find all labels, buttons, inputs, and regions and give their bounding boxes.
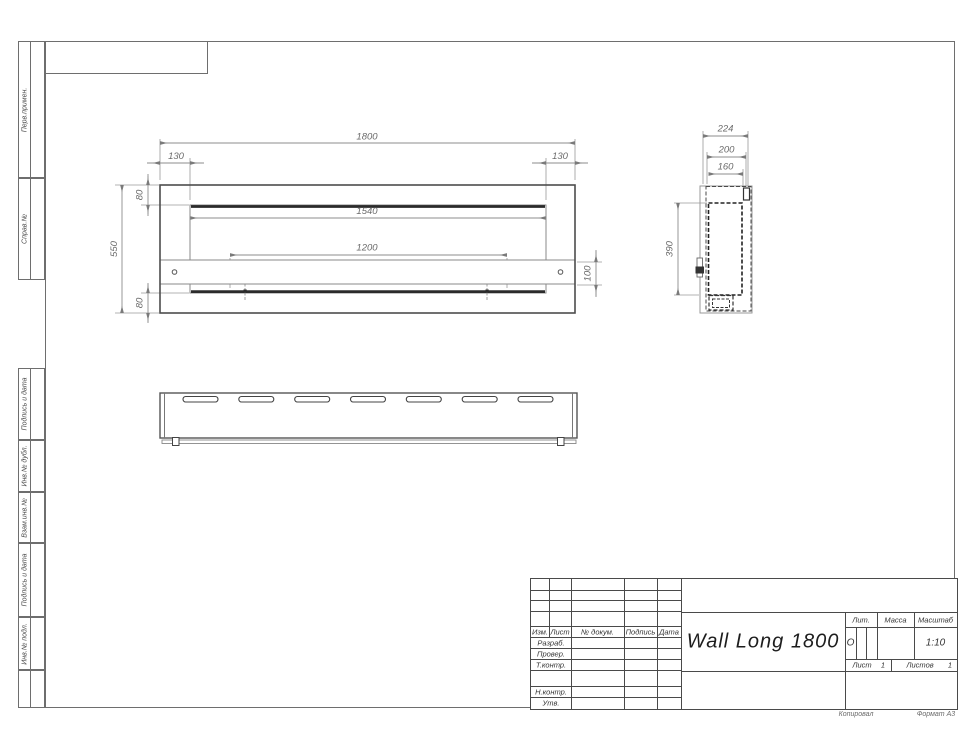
margin-box-inv-dubl: Инв.№ дубл. [18,440,45,492]
sheet-label: Лист [852,661,871,670]
row-nkontr: Н.контр. [535,687,567,696]
margin-box-sprav: Справ.№ [18,178,45,280]
title-block: Изм. Лист № докум. Подпись Дата Разраб. … [530,578,958,710]
row-tkontr: Т.контр. [536,660,566,669]
margin-box-perv-primen: Перв.примен. [18,41,45,178]
margin-box-podpis-data-2: Подпись и дата [18,543,45,617]
margin-box-podpis-data-1: Подпись и дата [18,368,45,440]
col-date: Дата [659,627,679,636]
margin-box-inv-podl: Инв.№ подл. [18,617,45,670]
top-left-stamp-box [45,41,208,74]
margin-label: Справ.№ [21,214,28,244]
document-title: Wall Long 1800 [687,630,840,653]
sheets-label: Листов [906,661,933,670]
scale-value: 1:10 [926,638,945,649]
lit-label: Лит. [852,615,870,624]
copied-by-label: Копировал [839,711,874,718]
row-prover: Провер. [537,649,565,658]
margin-label: Перв.примен. [21,87,28,132]
row-razrab: Разраб. [537,638,564,647]
margin-box-vzam-inv: Взам.инв.№ [18,492,45,543]
margin-label: Инв.№ подл. [21,623,28,665]
margin-label: Подпись и дата [21,554,28,607]
col-doc: № докум. [581,627,614,636]
drawing-sheet: 1800 130 130 80 550 80 1540 1200 100 [0,0,970,749]
scale-label: Масштаб [918,615,953,624]
col-sign: Подпись [626,627,656,636]
sheets-total: 1 [948,661,952,670]
margin-label: Взам.инв.№ [21,498,28,537]
sheet-number: 1 [881,661,885,670]
margin-label: Инв.№ дубл. [21,445,28,486]
margin-box-empty [18,670,45,708]
mass-label: Масса [884,615,906,624]
margin-label: Подпись и дата [21,378,28,431]
row-utv: Утв. [542,699,559,708]
col-izm: Изм. [532,627,548,636]
format-label: Формат А3 [917,711,955,718]
lit-value: О [847,638,855,649]
col-list: Лист [550,627,569,636]
